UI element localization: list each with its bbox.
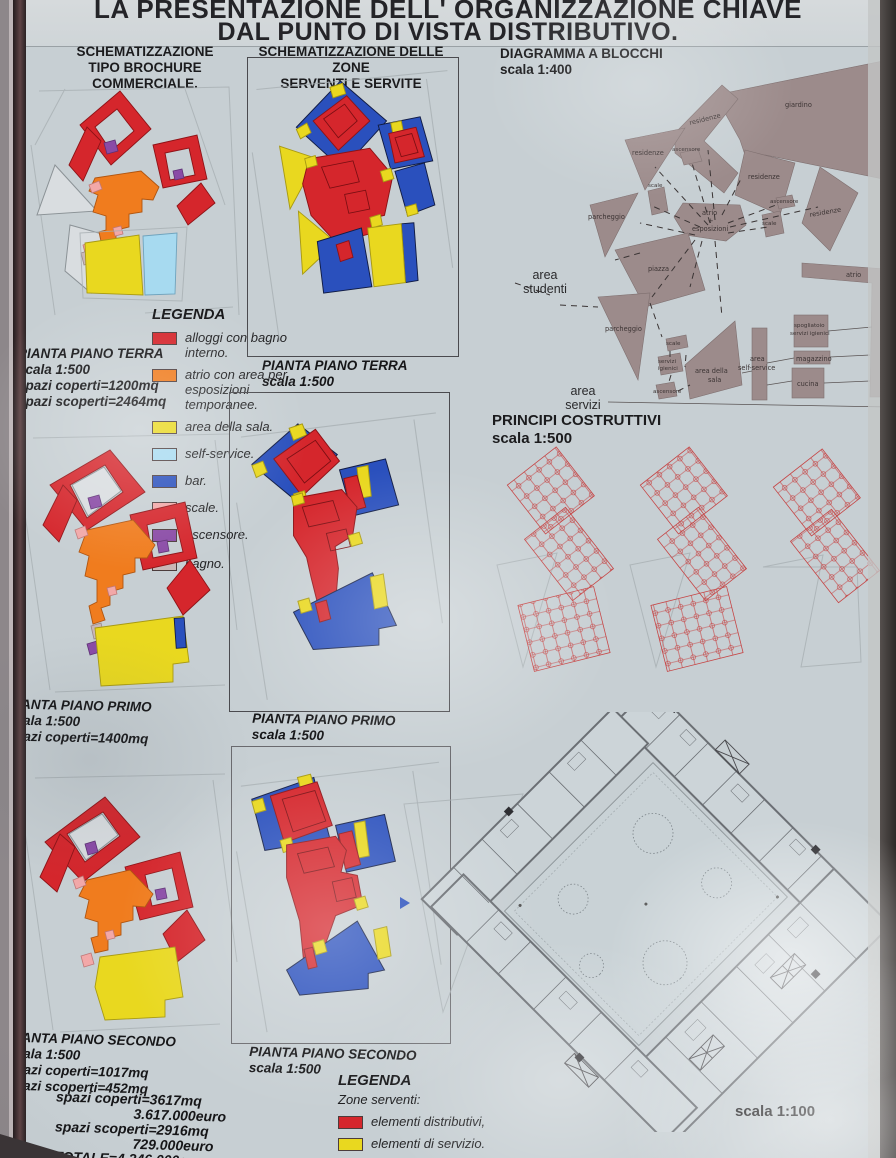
- board-edge-right: [880, 0, 896, 1158]
- swatch-red: [338, 1116, 363, 1129]
- block-scale-left: [648, 187, 668, 215]
- blue-pin-marker: [400, 897, 410, 909]
- label-line: area: [548, 384, 618, 398]
- scale-mark: [107, 586, 117, 596]
- swatch-yellow: [338, 1138, 363, 1151]
- ascensore-mark: [88, 495, 102, 509]
- caption-line: PIANTA PIANO TERRA: [262, 358, 408, 374]
- scale-mark: [81, 953, 94, 967]
- label-line: servizi: [548, 398, 618, 412]
- board-frame-left: [13, 0, 26, 1158]
- grid-cluster-1: [497, 447, 613, 671]
- caption-line: scala 1:500: [262, 374, 408, 390]
- caption-line: scala 1:500: [18, 362, 166, 378]
- ascensore-mark: [157, 540, 169, 553]
- plan-brochure-piano-secondo: [15, 772, 245, 1034]
- plan-brochure-piano-terra: [25, 85, 245, 320]
- caption-brochure-primo: PIANTA PIANO PRIMO scala 1:500 spazi cop…: [8, 697, 152, 748]
- label-igienici: igienici: [658, 366, 678, 372]
- cluster-top-right: [378, 117, 433, 169]
- caption-zone-terra: PIANTA PIANO TERRA scala 1:500: [262, 358, 408, 390]
- caption-line: PIANTA PIANO TERRA: [18, 346, 166, 362]
- label-scale: scale: [666, 341, 681, 347]
- label-plus: +: [708, 217, 714, 225]
- area-sala: [85, 235, 143, 295]
- poster-title-line2: DAL PUNTO DI VISTA DISTRIBUTIVO.: [0, 18, 896, 47]
- label-line: studenti: [505, 282, 585, 296]
- block-residenze-left: [625, 128, 685, 190]
- label-esposizioni: esposizioni: [692, 225, 728, 233]
- area-sala: [95, 947, 183, 1020]
- grid-cluster-3: [763, 449, 879, 667]
- cluster-right: [395, 163, 435, 217]
- area-studenti-label: area studenti: [505, 268, 585, 296]
- area-servizi-label: area servizi: [548, 384, 618, 412]
- label-magazzino: magazzino: [796, 355, 832, 363]
- self-service: [143, 233, 177, 295]
- label-area-della: area della: [695, 367, 728, 375]
- building-plan: [408, 712, 896, 1132]
- ascensore-mark: [104, 140, 118, 154]
- swatch-red: [152, 332, 177, 345]
- label-cucina: cucina: [797, 380, 818, 388]
- poster-right-edge: [868, 0, 880, 1158]
- caption-brochure-secondo: PIANTA PIANO SECONDO scala 1:500 spazi c…: [7, 1030, 176, 1099]
- cluster-bottom: [294, 573, 397, 650]
- label-ascensore: ascensore: [653, 389, 682, 395]
- red-housing-ring-2: [130, 502, 210, 615]
- label-servizi: servizi: [658, 359, 676, 365]
- block-diagram: giardino residenze ascensore residenze r…: [490, 55, 890, 415]
- label-self-service: self-service: [738, 364, 775, 372]
- caption-line: scala 1:500: [252, 727, 396, 745]
- plan-1-100: [398, 712, 896, 1132]
- label-giardino: giardino: [785, 101, 812, 109]
- scala-1-100-label: scala 1:100: [735, 1103, 815, 1120]
- red-housing-ring-2: [125, 852, 205, 962]
- caption-line: spazi coperti=1400mq: [8, 728, 152, 747]
- plan-zone-piano-primo: [230, 393, 449, 711]
- caption-line: spazi scoperti=2464mq: [18, 394, 166, 410]
- ascensore-mark: [173, 169, 184, 180]
- plan-zone-piano-terra: [248, 58, 458, 356]
- block-giardino: [715, 60, 888, 180]
- label-area: area: [750, 355, 765, 363]
- label-sala: sala: [708, 376, 721, 384]
- panel-zone-primo: [229, 392, 450, 712]
- label-parcheggio: parcheggio: [605, 325, 642, 333]
- caption-brochure-terra: PIANTA PIANO TERRA scala 1:500 spazi cop…: [18, 346, 166, 410]
- block-shapes: [590, 60, 888, 400]
- header-principi: PRINCIPI COSTRUTTIVI scala 1:500: [492, 412, 661, 448]
- label-atrio: atrio: [846, 271, 861, 279]
- label-atrio: atrio: [702, 209, 717, 217]
- swatch-orange: [152, 369, 177, 382]
- label-residenze: residenze: [632, 149, 664, 157]
- label-scale: scale: [762, 221, 777, 227]
- label-ascensore: ascensore: [672, 147, 701, 153]
- structural-grids: [495, 445, 895, 730]
- caption-zone-primo: PIANTA PIANO PRIMO scala 1:500: [252, 711, 396, 745]
- principi-title: PRINCIPI COSTRUTTIVI: [492, 412, 661, 430]
- label-piazza: piazza: [648, 265, 669, 273]
- label-spogliatoio: spogliatoio: [794, 323, 825, 329]
- unbuilt-triangle: [37, 165, 97, 215]
- legend-item: elementi di servizio.: [338, 1136, 521, 1151]
- bar-strip: [174, 618, 186, 649]
- header-brochure-line1: SCHEMATIZZAZIONE: [40, 44, 250, 60]
- red-housing-ring-1: [69, 91, 151, 181]
- label-parcheggio: parcheggio: [588, 213, 625, 221]
- poster-photo: LA PRESENTAZIONE DELL' ORGANIZZAZIONE CH…: [0, 0, 896, 1158]
- label-servizi-igienici: servizi igienici: [790, 331, 830, 337]
- label-residenze: residenze: [748, 173, 780, 181]
- block-area-sala: [685, 321, 742, 399]
- block-residenze-top: [675, 85, 738, 193]
- panel-zone-terra: [247, 57, 459, 357]
- block-parcheggio-2: [598, 293, 650, 380]
- cluster-top-right: [336, 814, 396, 872]
- caption-line: spazi coperti=1200mq: [18, 378, 166, 394]
- legend-label: elementi di servizio.: [371, 1136, 521, 1151]
- atrio-band: [79, 520, 155, 624]
- label-line: area: [505, 268, 585, 282]
- ascensore-mark: [155, 888, 167, 900]
- plan-brochure-piano-primo: [15, 430, 245, 695]
- label-ascensore: ascensore: [770, 199, 799, 205]
- totals-block: spazi coperti=3617mq 3.617.000euro spazi…: [54, 1089, 227, 1158]
- label-scale: scale: [648, 183, 663, 189]
- scale-mark: [105, 930, 115, 940]
- wall-strip: [0, 0, 9, 1158]
- grid-cluster-2: [630, 447, 746, 671]
